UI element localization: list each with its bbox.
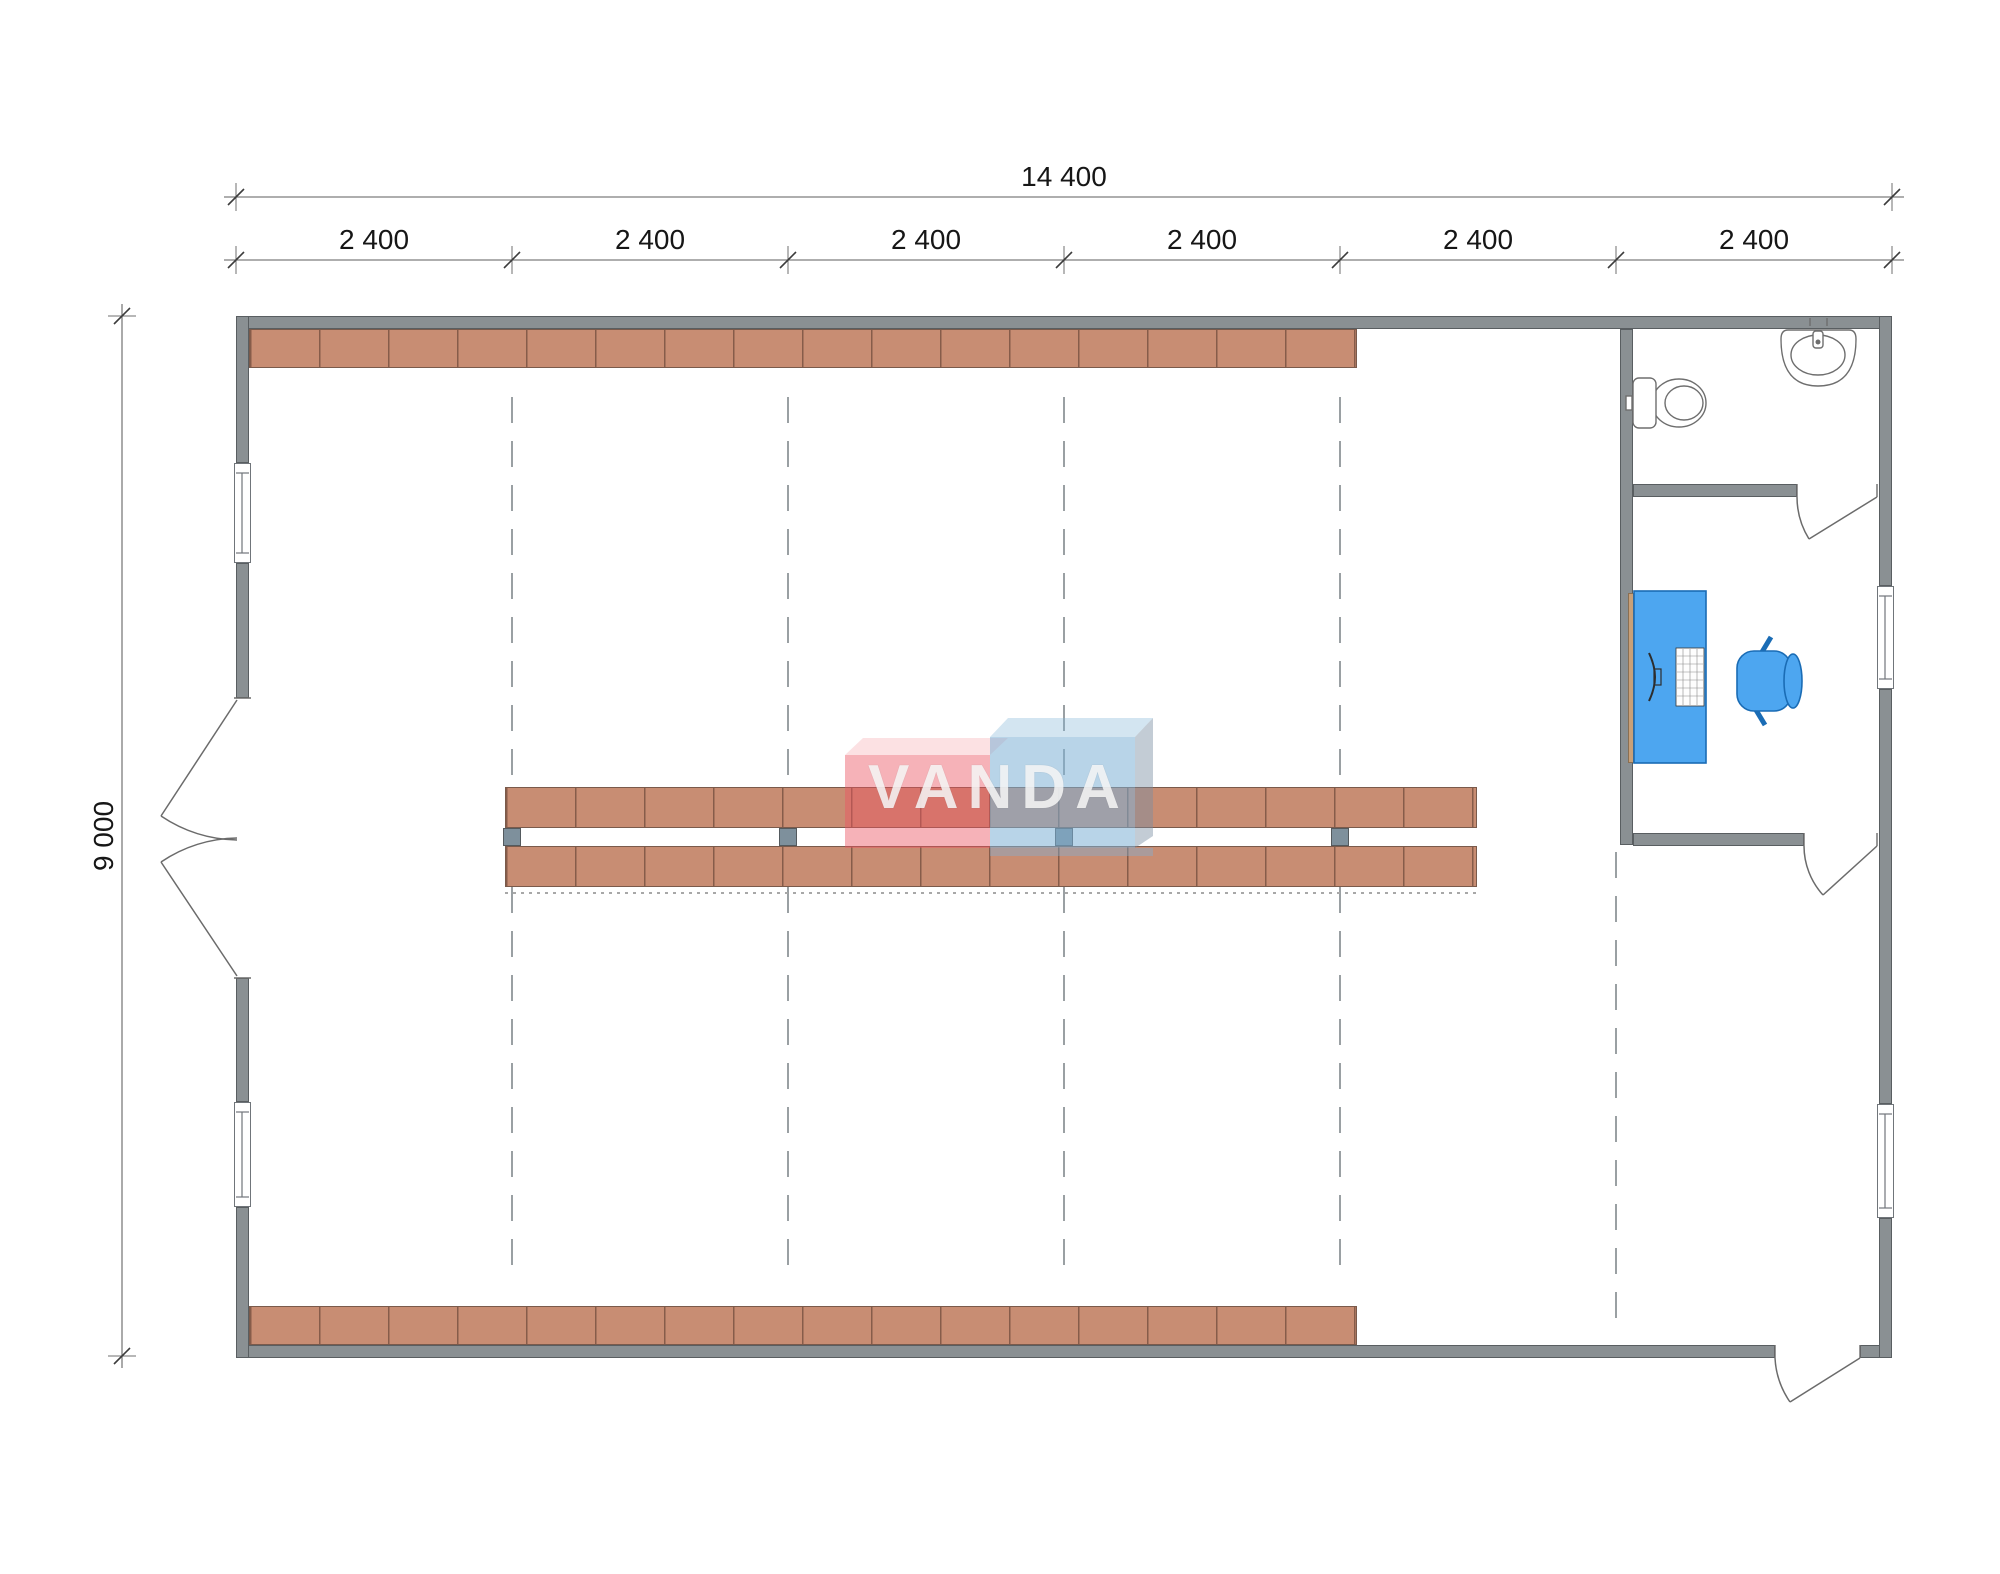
office-door bbox=[1804, 846, 1877, 895]
office-chair bbox=[1737, 637, 1802, 725]
logo-blue-block-top bbox=[990, 718, 1153, 737]
exterior-door-bottom bbox=[1775, 1358, 1860, 1402]
logo-blue-block-lip bbox=[990, 848, 1153, 856]
floor-plan: 14 400 2 400 2 400 2 400 2 400 2 400 2 4… bbox=[0, 0, 2000, 1574]
logo-blue-block-side bbox=[1135, 718, 1153, 848]
logo-wordmark: VANDA bbox=[868, 752, 1129, 823]
double-door-left bbox=[161, 700, 237, 976]
toilet bbox=[1626, 378, 1706, 428]
door-jambs bbox=[234, 484, 1877, 1358]
sink bbox=[1781, 318, 1856, 386]
keyboard bbox=[1676, 648, 1704, 706]
office-desk bbox=[1634, 591, 1706, 763]
bathroom-door bbox=[1797, 497, 1877, 539]
